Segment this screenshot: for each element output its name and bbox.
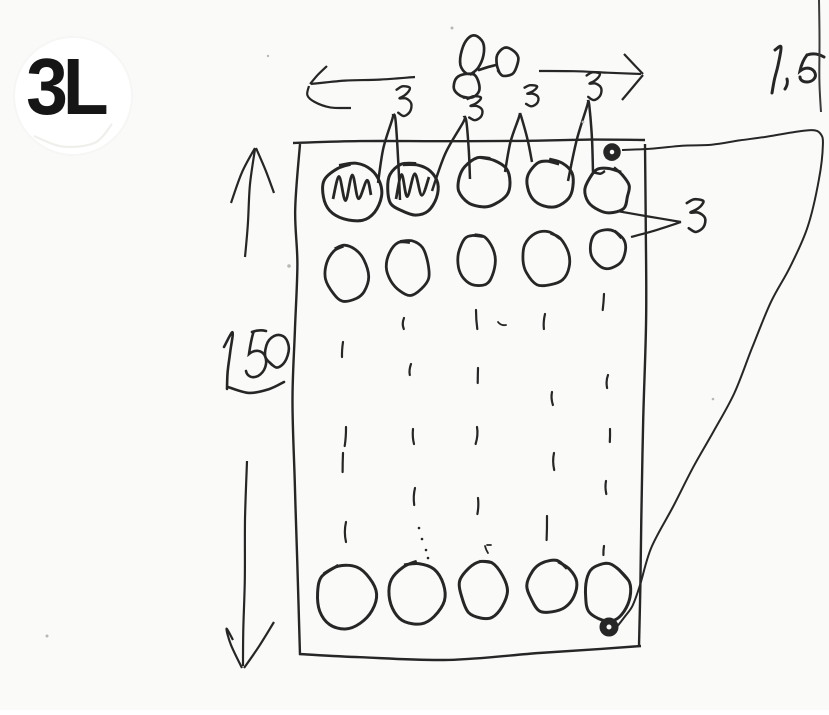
svg-text:L: L [63, 43, 109, 132]
svg-text:3: 3 [26, 43, 68, 132]
